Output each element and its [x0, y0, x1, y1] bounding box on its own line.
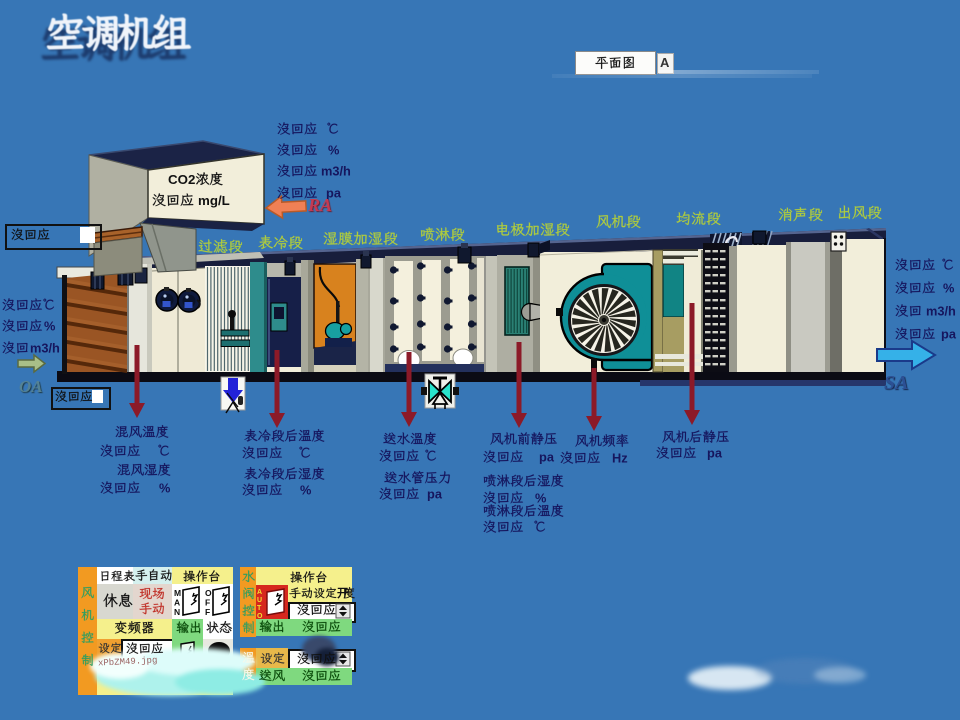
svg-text:A: A: [174, 598, 180, 608]
svg-text:A: A: [257, 589, 262, 596]
svg-text:U: U: [257, 597, 262, 604]
svg-text:O: O: [205, 588, 212, 598]
svg-text:mg/L: mg/L: [198, 193, 230, 208]
svg-text:pa: pa: [427, 486, 443, 501]
svg-text:T: T: [257, 605, 262, 612]
svg-text:CO2: CO2: [168, 172, 195, 187]
svg-text:%: %: [44, 318, 56, 333]
svg-text:N: N: [174, 607, 180, 617]
svg-text:%: %: [328, 142, 340, 157]
svg-text:Hz: Hz: [612, 450, 628, 465]
svg-text:O: O: [257, 613, 263, 620]
svg-text:M: M: [174, 588, 181, 598]
svg-text:pa: pa: [539, 449, 555, 464]
svg-text:%: %: [943, 280, 955, 295]
svg-text:F: F: [205, 607, 210, 617]
svg-text:%: %: [159, 480, 171, 495]
svg-text:pa: pa: [941, 326, 957, 341]
svg-text:pa: pa: [707, 445, 723, 460]
svg-text:m3/h: m3/h: [926, 303, 956, 318]
svg-text:F: F: [205, 598, 210, 608]
svg-text:m3/h: m3/h: [321, 163, 351, 178]
svg-text:m3/h: m3/h: [30, 340, 60, 355]
svg-text:%: %: [300, 482, 312, 497]
